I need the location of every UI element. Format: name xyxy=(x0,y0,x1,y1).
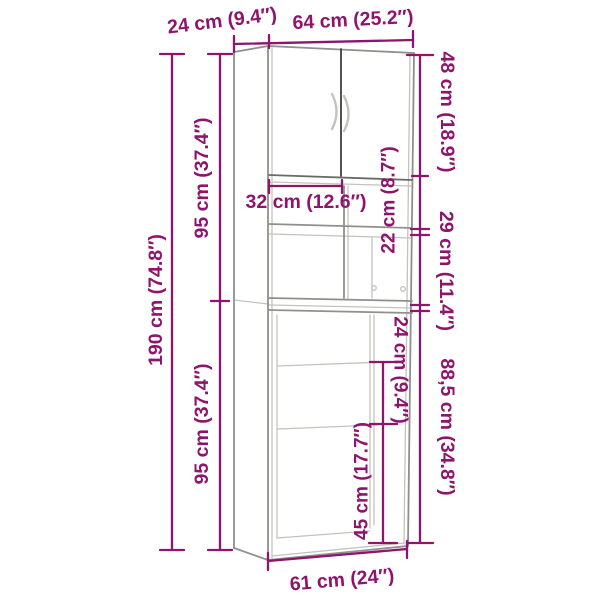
dim-label-top-depth: 24 cm (9.4″) xyxy=(166,3,278,38)
dimension-diagram: 24 cm (9.4″) 64 cm (25.2″) 190 cm (74.8″… xyxy=(0,0,600,600)
dim-label-inner-upper-height: 24 cm (9.4″) xyxy=(390,316,411,423)
dim-label-top-width: 64 cm (25.2″) xyxy=(292,6,414,34)
dim-label-niche-width: 32 cm (12.6″) xyxy=(246,191,367,213)
dim-label-door-section-height: 48 cm (18.9″) xyxy=(436,52,458,173)
dim-label-inner-lower-height: 45 cm (17.7″) xyxy=(352,422,373,540)
cabinet-detail-lines xyxy=(234,48,412,558)
dim-label-lower-section-height: 95 cm (37.4″) xyxy=(191,364,213,485)
dim-label-bottom-width: 61 cm (24″) xyxy=(289,564,395,595)
cabinet-drawing xyxy=(234,46,414,560)
dim-label-upper-section-height: 95 cm (37.4″) xyxy=(191,118,213,239)
dim-label-middle-compartment-height: 29 cm (11.4″) xyxy=(435,211,457,331)
cabinet-dimension-drawing: 24 cm (9.4″) 64 cm (25.2″) 190 cm (74.8″… xyxy=(0,0,600,600)
dim-label-niche-height: 22 cm (8.7″) xyxy=(379,146,400,253)
dim-label-total-height: 190 cm (74.8″) xyxy=(145,234,167,366)
dim-label-machine-opening-height: 88,5 cm (34.8″) xyxy=(436,358,458,495)
